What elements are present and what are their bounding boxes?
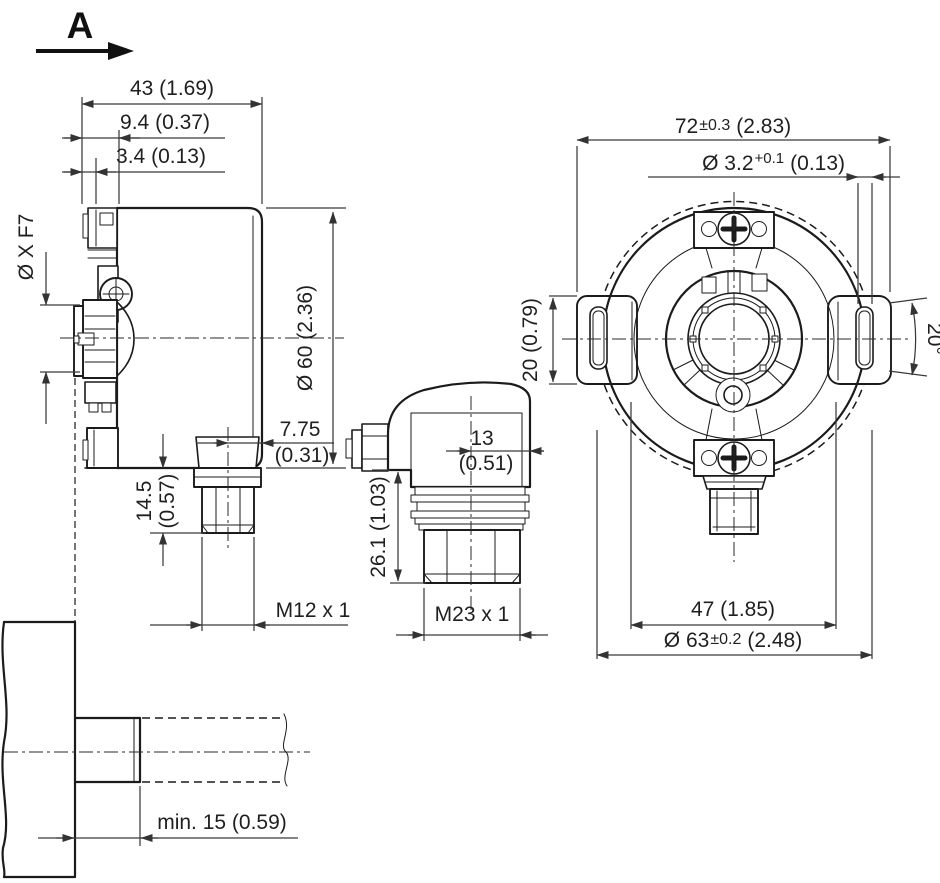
dim-m23-thread: M23 x 1 bbox=[435, 603, 510, 626]
dim-m12-length-mm: 14.5 bbox=[133, 481, 156, 522]
view-a-arrow-head bbox=[108, 42, 134, 60]
bottom-spring-clamp bbox=[85, 382, 116, 403]
wall-bottom-edge bbox=[4, 782, 75, 877]
m23-thread-body bbox=[424, 530, 520, 583]
dim-body-diameter: Ø 60 (2.36) bbox=[294, 285, 317, 391]
bottom-lug bbox=[87, 428, 118, 468]
dim-m12-length-in: (0.57) bbox=[156, 474, 179, 529]
connector-stub bbox=[362, 424, 388, 471]
dim-plate-offset: 3.4 (0.13) bbox=[116, 145, 206, 168]
view-a-label: A bbox=[67, 5, 94, 46]
dim-shaft-bore: Ø X F7 bbox=[15, 214, 38, 281]
dim-tab-span: 72±0.3(2.83) bbox=[675, 115, 791, 138]
view-direction-indicator: A bbox=[36, 5, 134, 60]
dim-total-width: 43 (1.69) bbox=[130, 77, 214, 100]
collar-pin bbox=[78, 333, 94, 345]
dim-pin-hole: Ø 3.2+0.1(0.13) bbox=[702, 150, 845, 175]
dim-pitch: 47 (1.85) bbox=[691, 598, 775, 621]
dim-flange-offset: 9.4 (0.37) bbox=[120, 111, 210, 134]
technical-drawing-page: A bbox=[0, 0, 940, 883]
mounting-view: min. 15 (0.59) bbox=[2, 622, 310, 877]
front-view bbox=[562, 192, 908, 562]
dim-conn-height: 26.1 (1.03) bbox=[367, 476, 390, 578]
dim-outer-diameter: Ø 63±0.2(2.48) bbox=[664, 629, 802, 652]
dim-m12-offset-in: (0.31) bbox=[275, 444, 330, 467]
shaft-stub bbox=[75, 718, 140, 782]
dim-slot-angle: 20° bbox=[923, 323, 940, 355]
clamp-ring-screw bbox=[716, 378, 750, 412]
dim-tab-height: 20 (0.79) bbox=[519, 298, 542, 382]
wall-top-edge bbox=[4, 622, 75, 718]
shaft-break-line bbox=[283, 714, 288, 786]
dim-conn-offset-mm: 13 bbox=[470, 427, 493, 450]
dim-min-shaft-depth: min. 15 (0.59) bbox=[157, 811, 287, 834]
encoder-dimensional-drawing: A bbox=[0, 0, 940, 883]
wall-break-edge bbox=[2, 622, 6, 877]
dim-m12-thread: M12 x 1 bbox=[276, 599, 351, 622]
dim-m12-offset-mm: 7.75 bbox=[280, 418, 321, 441]
dim-conn-offset-in: (0.51) bbox=[459, 452, 514, 475]
